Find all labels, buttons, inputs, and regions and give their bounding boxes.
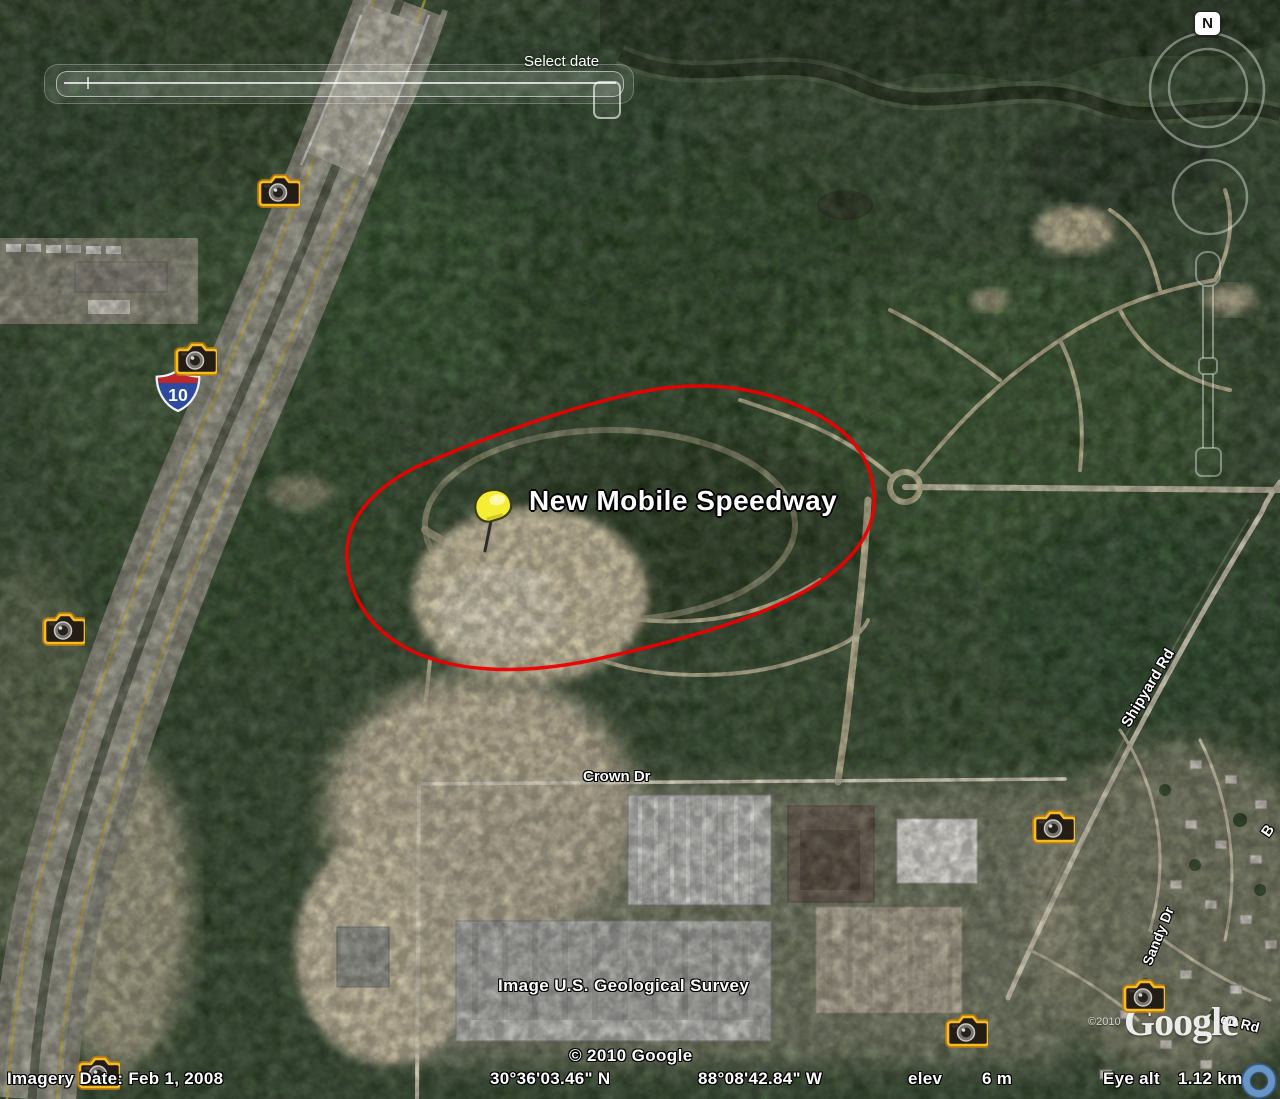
eye-altitude-label: Eye alt <box>1103 1069 1160 1089</box>
cursor-longitude: 88°08'42.84" W <box>698 1069 822 1089</box>
photo-camera-icon[interactable] <box>173 340 217 376</box>
placemark-pushpin-icon[interactable] <box>471 487 519 559</box>
texture-light <box>0 0 1280 1099</box>
photo-camera-icon[interactable] <box>1121 977 1165 1013</box>
elevation-label: elev <box>908 1069 942 1089</box>
eye-altitude-value: 1.12 km <box>1178 1069 1242 1089</box>
time-slider-label: Select date <box>524 53 599 70</box>
elevation-value: 6 m <box>982 1069 1012 1089</box>
photo-camera-icon[interactable] <box>41 610 85 646</box>
svg-text:10: 10 <box>168 385 188 405</box>
time-slider-handle[interactable] <box>593 81 621 119</box>
google-copyright: © 2010 Google <box>569 1046 693 1066</box>
imagery-date: Imagery Date: Feb 1, 2008 <box>7 1069 223 1089</box>
photo-camera-icon[interactable] <box>944 1012 988 1048</box>
road-label-crown-dr: Crown Dr <box>583 768 651 785</box>
cursor-latitude: 30°36'03.46" N <box>490 1069 610 1089</box>
satellite-map[interactable] <box>0 0 1280 1099</box>
time-slider-track-box[interactable] <box>56 71 624 97</box>
placemark-label[interactable]: New Mobile Speedway <box>529 485 837 517</box>
time-slider-start-tick <box>87 77 89 89</box>
streaming-indicator-icon <box>1240 1063 1278 1099</box>
usgs-credit: Image U.S. Geological Survey <box>498 976 749 996</box>
photo-camera-icon[interactable] <box>256 172 300 208</box>
photo-camera-icon[interactable] <box>1031 808 1075 844</box>
north-reset-button[interactable]: N <box>1194 11 1221 36</box>
time-slider-track-line <box>64 82 616 84</box>
small-copyright: ©2010 <box>1088 1016 1121 1028</box>
google-earth-viewport[interactable]: 10 <box>0 0 1280 1099</box>
